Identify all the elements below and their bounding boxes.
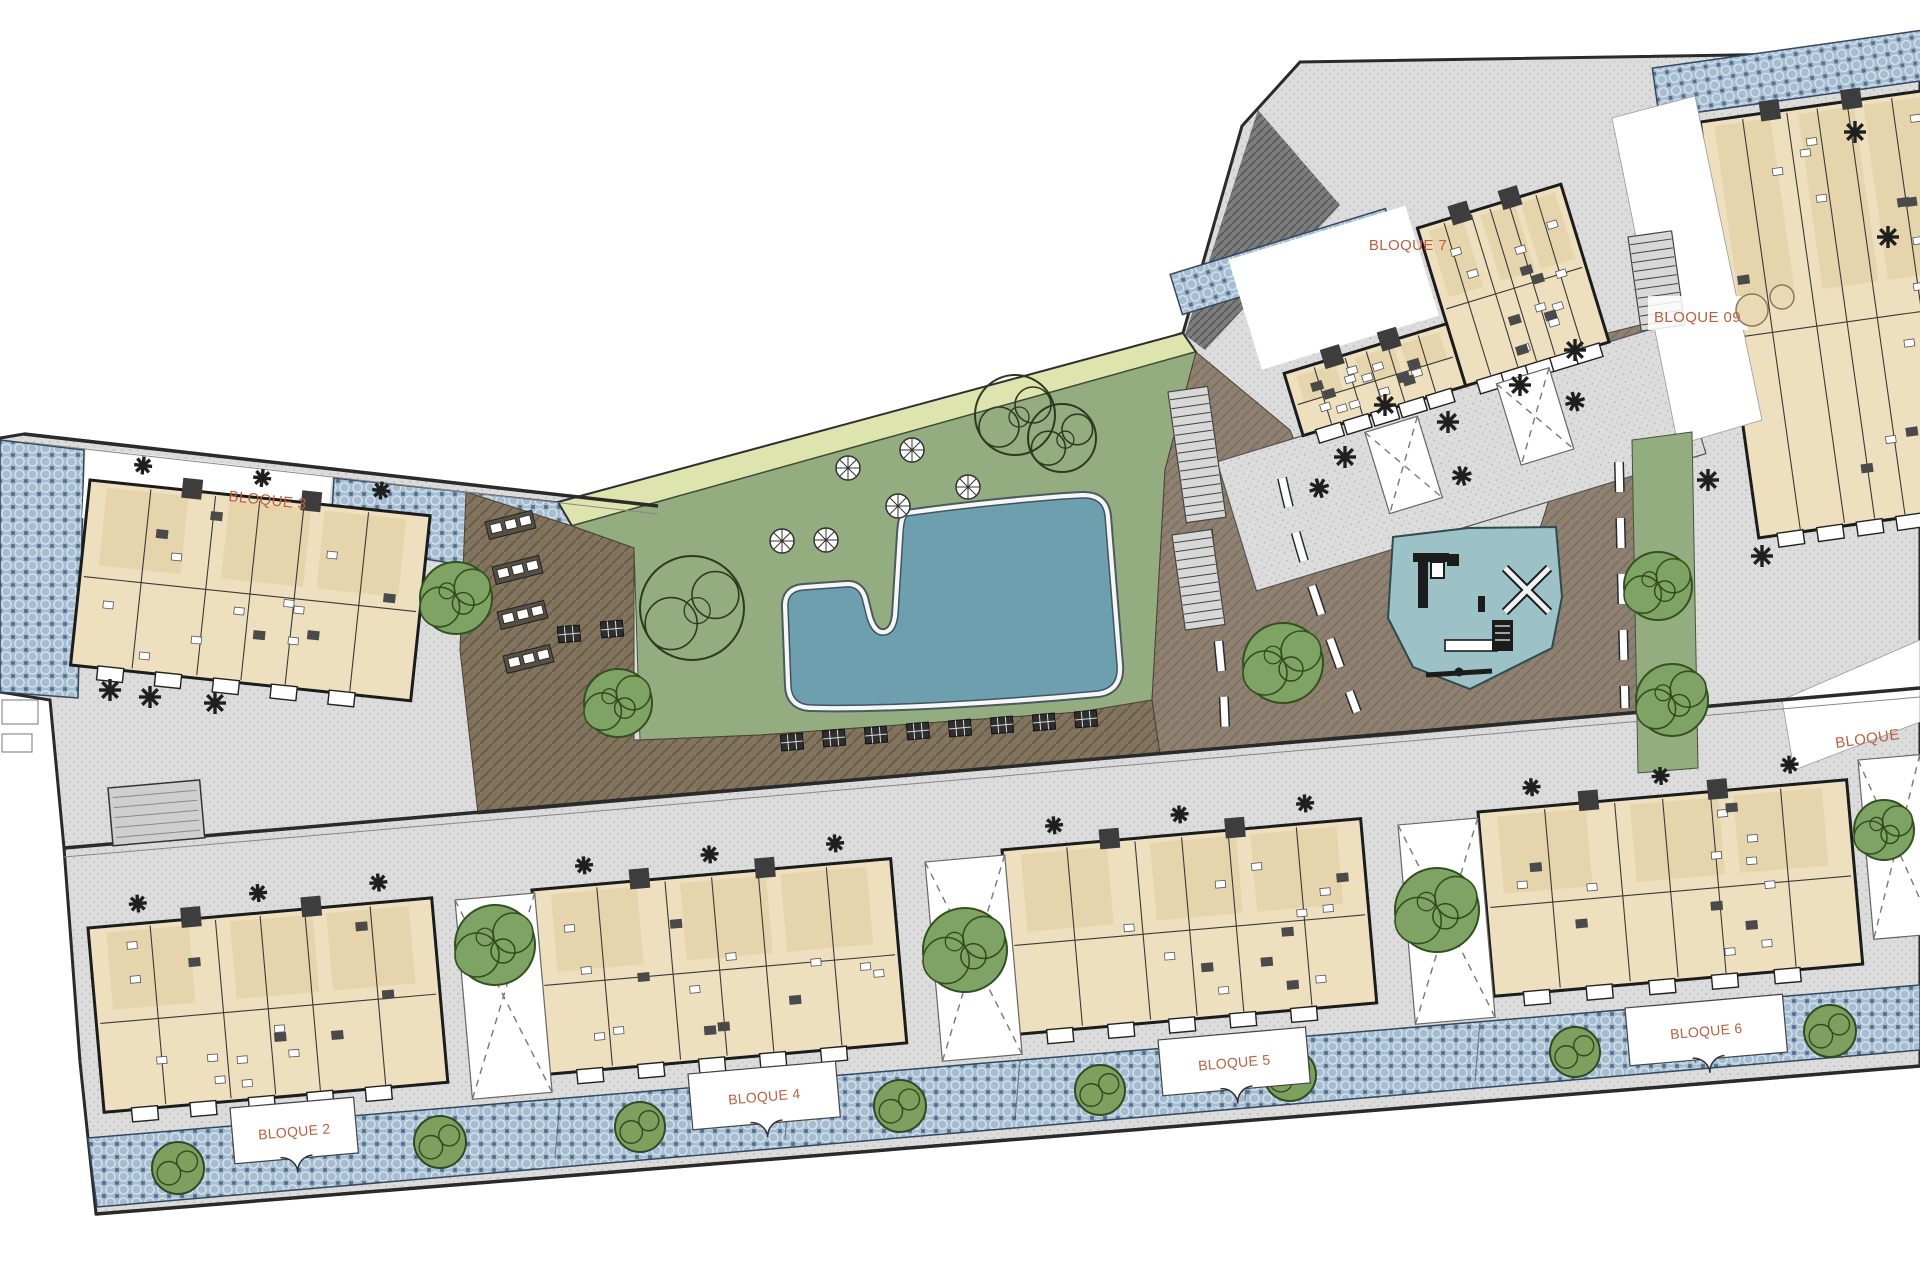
patio-table-icon: [1374, 394, 1396, 416]
tree-icon: [1624, 552, 1692, 620]
patio-table-icon: [1334, 446, 1356, 468]
patio-table-icon: [99, 679, 121, 701]
sun-lounger-icon: [780, 733, 803, 751]
sun-lounger-icon: [822, 729, 845, 747]
parasol-icon: [770, 529, 794, 553]
tree-icon: [1636, 664, 1708, 736]
parasol-icon: [836, 456, 860, 480]
utility-structure: [108, 780, 205, 846]
sun-lounger-icon: [557, 625, 580, 643]
patio-table-icon: [204, 692, 226, 714]
site-plan-drawing: BLOQUE 2 BLOQUE 4 BLOQUE 5 BLOQUE 6 BLOQ…: [0, 0, 1920, 1280]
parasol-icon: [900, 438, 924, 462]
sun-lounger-icon: [1032, 713, 1055, 731]
patio-table-icon: [1844, 121, 1866, 143]
tree-icon: [420, 562, 492, 634]
sun-lounger-icon: [864, 726, 887, 744]
sun-lounger-icon: [600, 620, 623, 638]
bush-icon: [1804, 1005, 1856, 1057]
patio-table-icon: [1877, 226, 1899, 248]
patio-table-icon: [1697, 469, 1719, 491]
patio-table-icon: [1437, 411, 1459, 433]
sun-lounger-icon: [1074, 710, 1097, 728]
sun-lounger-icon: [990, 716, 1013, 734]
parasol-icon: [956, 475, 980, 499]
tree-icon: [1243, 623, 1323, 703]
bush-icon: [1075, 1065, 1125, 1115]
patio-table-icon: [1751, 545, 1773, 567]
patio-table-icon: [139, 686, 161, 708]
block-7-label: BLOQUE 7: [1369, 237, 1447, 254]
parasol-icon: [814, 528, 838, 552]
tree-icon: [1395, 868, 1479, 952]
parasol-icon: [886, 494, 910, 518]
bush-icon: [1550, 1027, 1600, 1077]
sun-lounger-icon: [948, 719, 971, 737]
bush-icon: [874, 1080, 926, 1132]
bush-icon: [615, 1102, 665, 1152]
bush-icon: [414, 1116, 466, 1168]
tree-icon: [584, 669, 652, 737]
tree-icon: [455, 905, 535, 985]
tree-icon: [923, 908, 1007, 992]
planter-circle-icon: [1770, 285, 1794, 309]
patio-table-icon: [1564, 339, 1586, 361]
bush-icon: [152, 1142, 204, 1194]
site-plan-page: BLOQUE 2 BLOQUE 4 BLOQUE 5 BLOQUE 6 BLOQ…: [0, 0, 1920, 1280]
sun-lounger-icon: [906, 722, 929, 740]
edge-structure: [2, 734, 32, 752]
tree-icon: [1854, 800, 1914, 860]
edge-structure: [2, 700, 38, 724]
patio-table-icon: [1509, 374, 1531, 396]
block-9-label: BLOQUE 09: [1654, 309, 1741, 326]
